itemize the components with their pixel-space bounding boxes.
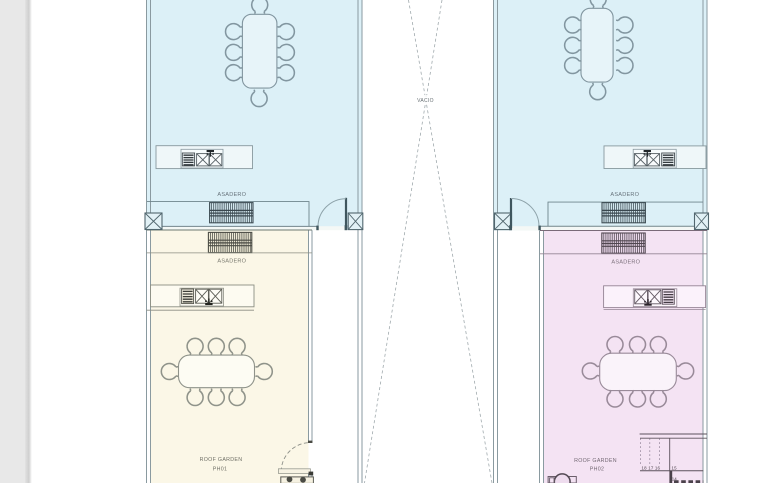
svg-text:VACIO: VACIO	[417, 98, 434, 104]
svg-text:ASADERO: ASADERO	[217, 192, 246, 198]
svg-text:15: 15	[672, 465, 678, 470]
svg-text:PH01: PH01	[213, 466, 227, 472]
svg-text:ROOF GARDEN: ROOF GARDEN	[200, 457, 243, 463]
svg-text:ASADERO: ASADERO	[610, 192, 639, 198]
svg-text:ASADERO: ASADERO	[217, 259, 246, 265]
svg-text:PH02: PH02	[590, 466, 604, 472]
svg-text:ROOF GARDEN: ROOF GARDEN	[574, 458, 617, 464]
svg-text:18 17 16: 18 17 16	[642, 465, 661, 470]
svg-text:ASADERO: ASADERO	[611, 259, 640, 265]
